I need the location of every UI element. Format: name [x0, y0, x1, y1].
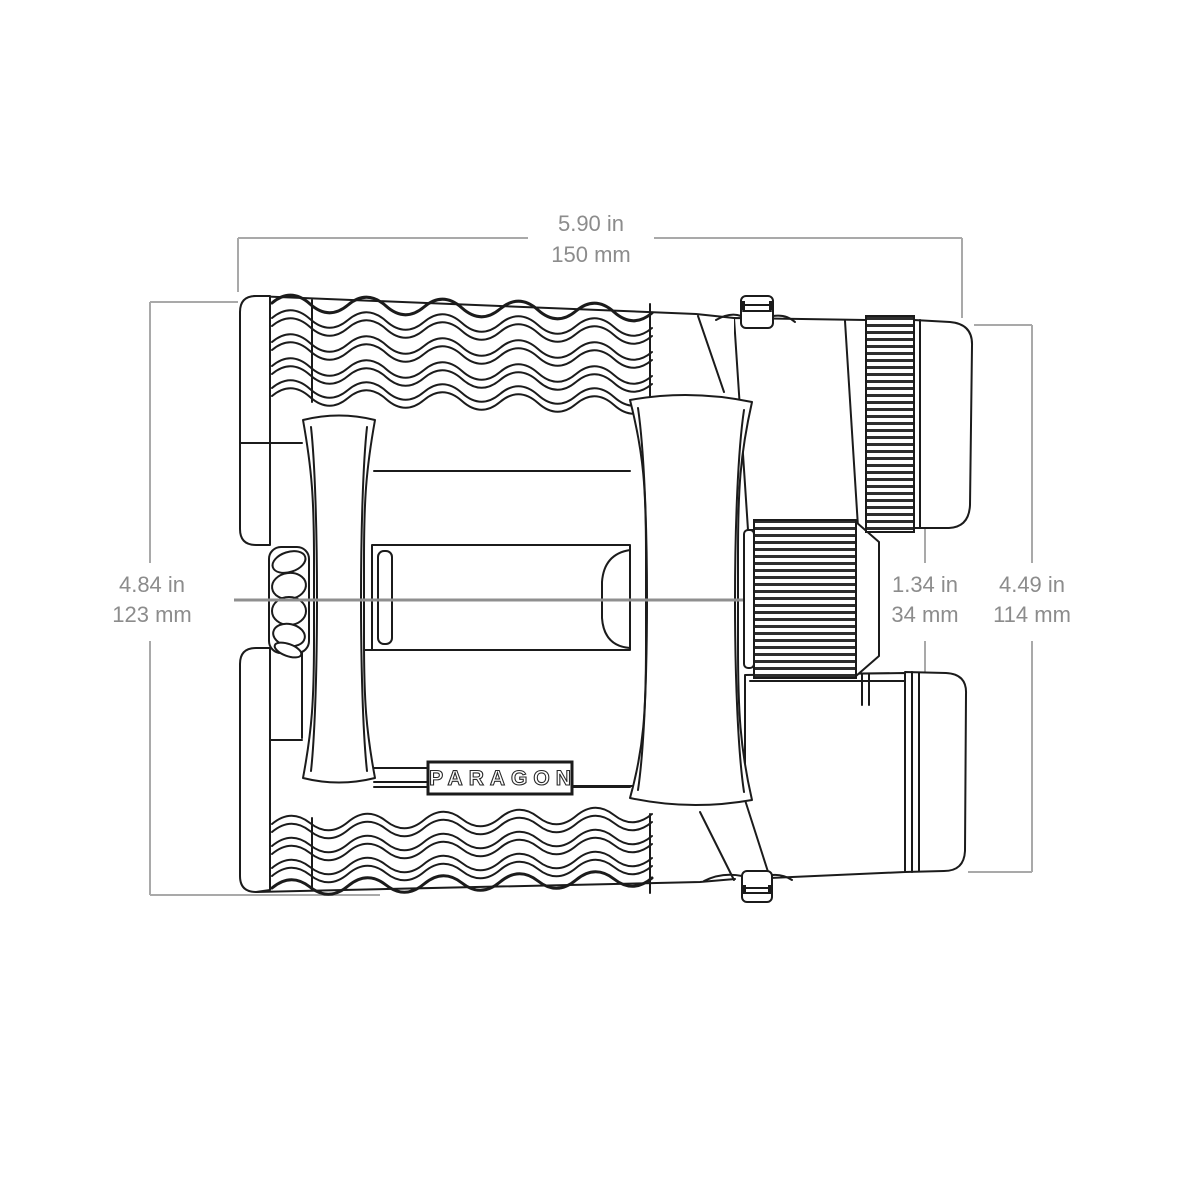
dimension-height-mm: 123 mm [112, 602, 191, 627]
top-eyecup [914, 320, 972, 528]
binoculars-dimension-diagram: 5.90 in 150 mm 4.84 in 123 mm 1.34 in 34… [0, 0, 1200, 1200]
strap-lug-bottom [704, 871, 792, 902]
dimension-height-inches: 4.84 in [119, 572, 185, 597]
focus-wheel [744, 520, 879, 678]
dimension-eyepiece-gap-mm: 34 mm [891, 602, 958, 627]
diopter-ring [866, 316, 914, 532]
bottom-eyecup [905, 672, 966, 872]
dimension-width-inches: 5.90 in [558, 211, 624, 236]
diagram-canvas: 5.90 in 150 mm 4.84 in 123 mm 1.34 in 34… [0, 0, 1200, 1200]
top-eyepiece-tube [734, 318, 866, 530]
bottom-eyepiece-tube [745, 673, 905, 878]
binoculars-drawing: PARAGON [234, 295, 972, 902]
brand-label-text: PARAGON [429, 767, 577, 790]
top-objective-cap [240, 296, 270, 545]
dimension-body-length: 4.49 in 114 mm [968, 325, 1071, 872]
dimension-body-length-mm: 114 mm [993, 602, 1071, 627]
brand-label: PARAGON [428, 762, 577, 794]
hinge-knuckles [269, 547, 309, 660]
dimension-body-length-inches: 4.49 in [999, 572, 1065, 597]
hinge-axle [372, 545, 630, 650]
dimension-width-mm: 150 mm [551, 242, 630, 267]
bottom-objective-cap [240, 648, 270, 892]
dimension-eyepiece-gap-inches: 1.34 in [892, 572, 958, 597]
